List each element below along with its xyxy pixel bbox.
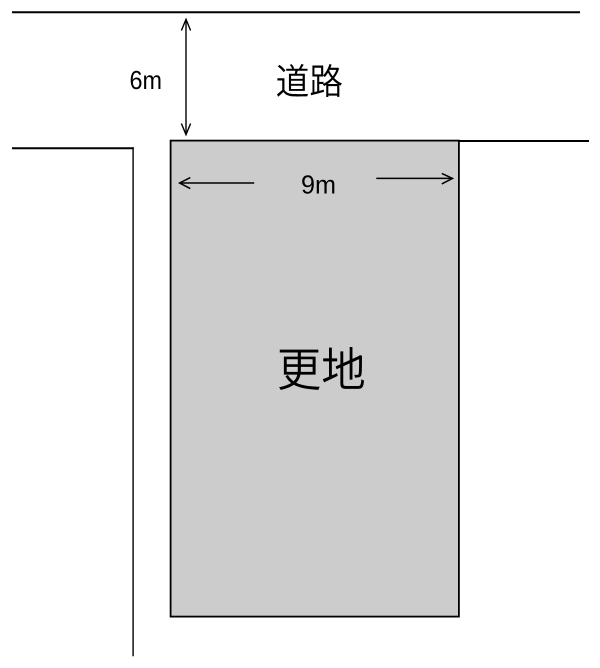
svg-text:9m: 9m: [301, 169, 336, 199]
svg-text:6m: 6m: [130, 65, 163, 95]
